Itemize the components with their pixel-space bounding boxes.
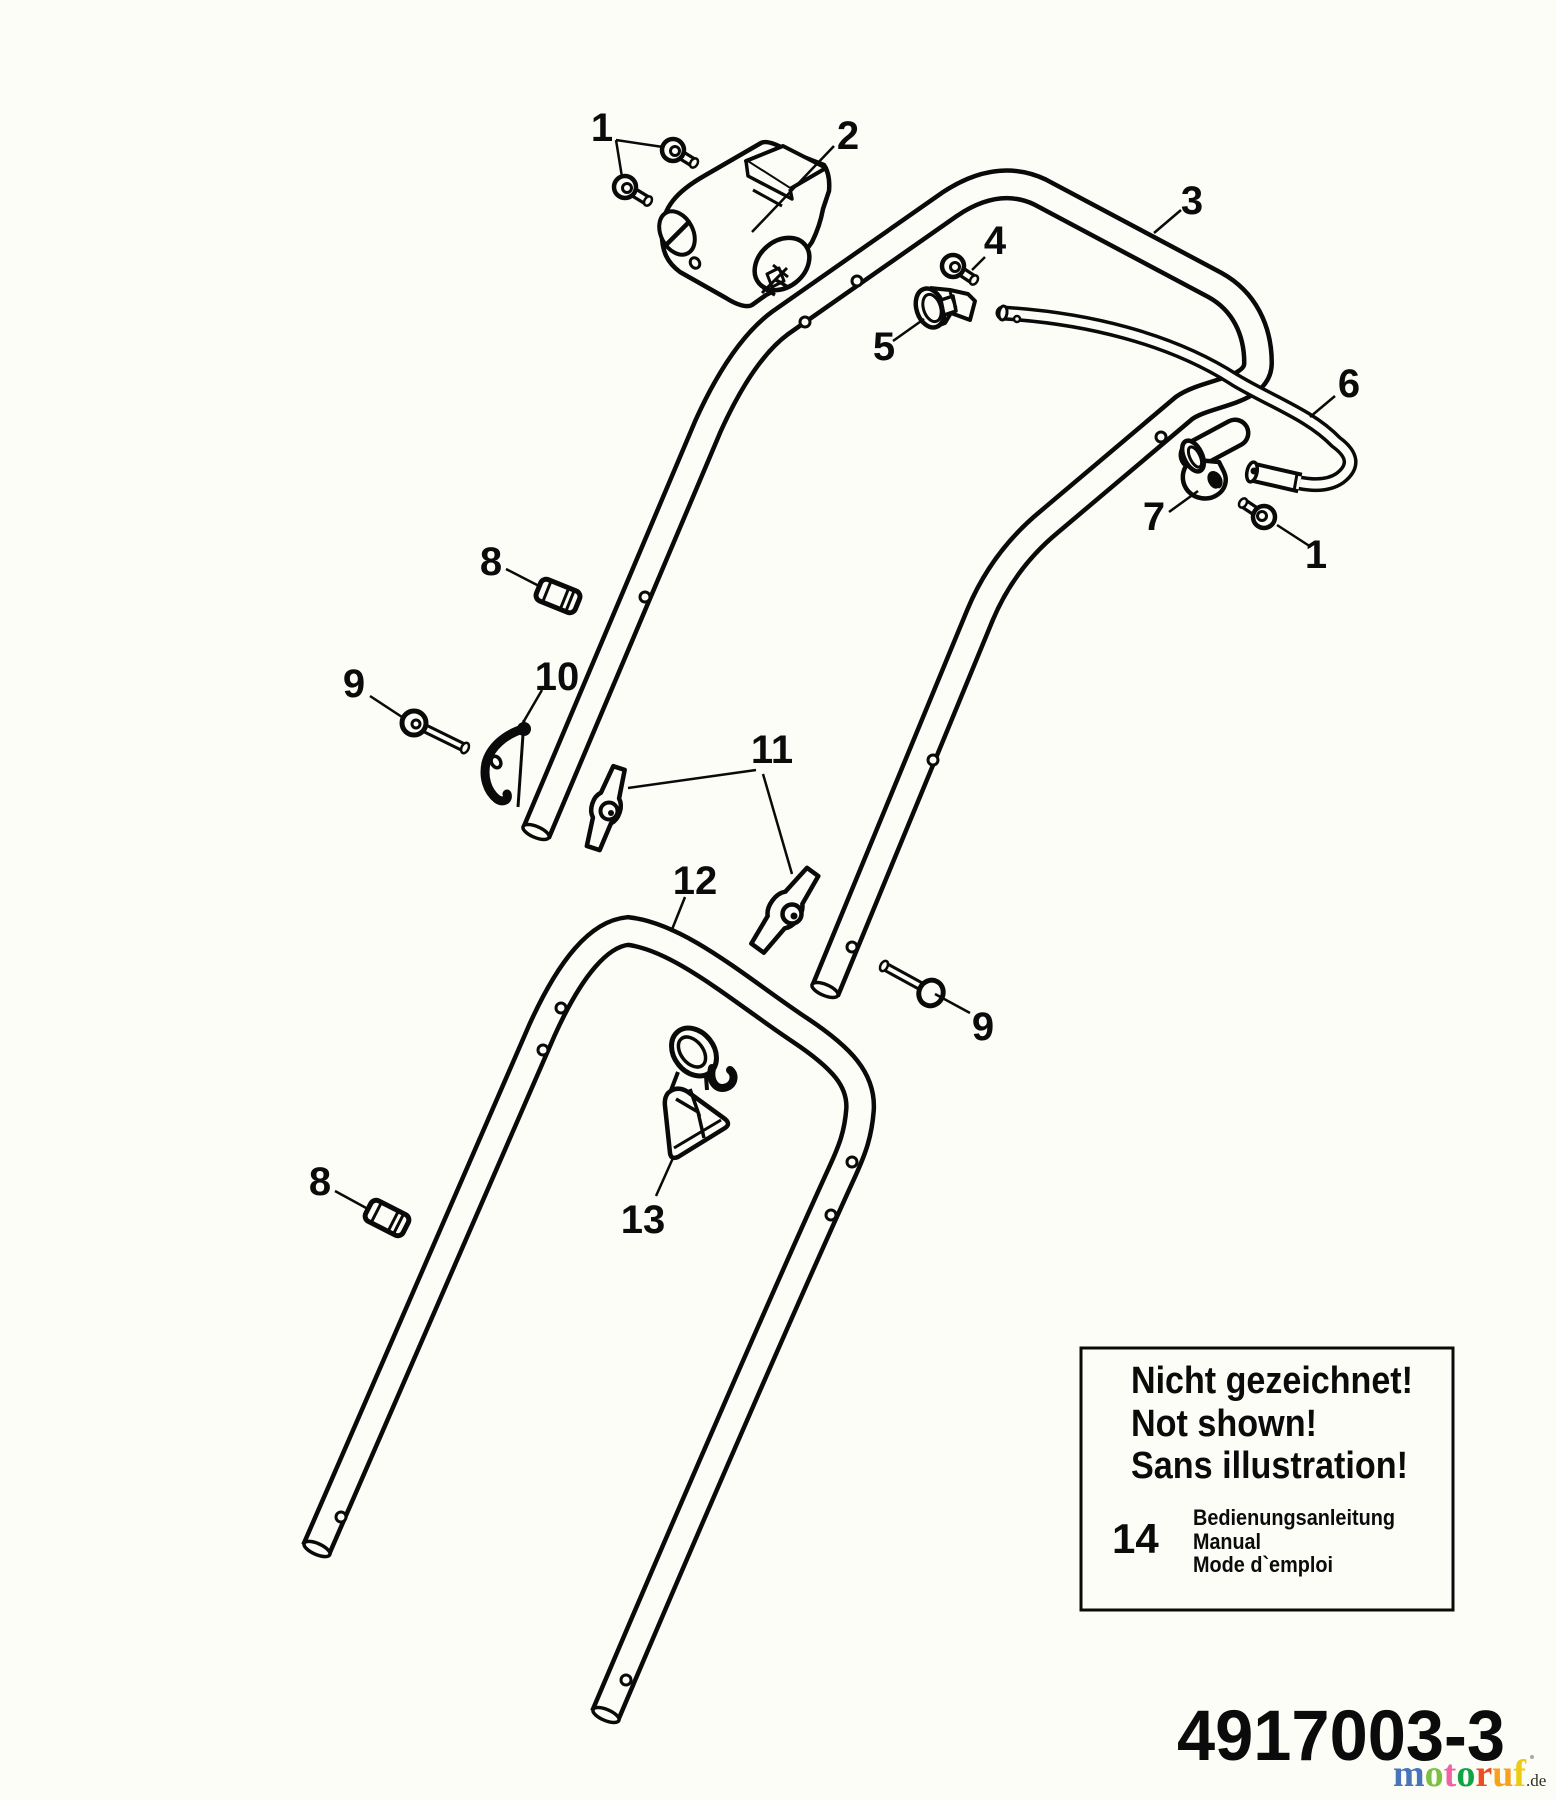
svg-text:12: 12	[673, 859, 718, 903]
svg-text:6: 6	[1338, 362, 1360, 406]
svg-text:9: 9	[343, 662, 365, 706]
svg-text:Manual: Manual	[1193, 1529, 1261, 1554]
svg-text:1: 1	[591, 106, 613, 150]
svg-text:3: 3	[1181, 179, 1203, 223]
svg-text:Mode d`emploi: Mode d`emploi	[1193, 1552, 1333, 1577]
svg-text:13: 13	[621, 1198, 666, 1242]
svg-text:Not shown!: Not shown!	[1131, 1403, 1317, 1445]
svg-text:14: 14	[1112, 1515, 1159, 1562]
svg-text:4: 4	[984, 219, 1007, 263]
svg-text:2: 2	[837, 114, 859, 158]
svg-text:11: 11	[751, 728, 793, 772]
svg-text:Sans illustration!: Sans illustration!	[1131, 1445, 1408, 1487]
svg-text:5: 5	[873, 325, 895, 369]
svg-text:7: 7	[1143, 495, 1165, 539]
svg-text:Nicht gezeichnet!: Nicht gezeichnet!	[1131, 1360, 1413, 1402]
svg-text:9: 9	[972, 1005, 994, 1049]
svg-text:Bedienungsanleitung: Bedienungsanleitung	[1193, 1505, 1395, 1530]
svg-text:8: 8	[480, 540, 502, 584]
svg-text:8: 8	[309, 1160, 331, 1204]
svg-text:1: 1	[1305, 533, 1327, 577]
svg-text:motoruf.de: motoruf.de	[1393, 1753, 1546, 1795]
